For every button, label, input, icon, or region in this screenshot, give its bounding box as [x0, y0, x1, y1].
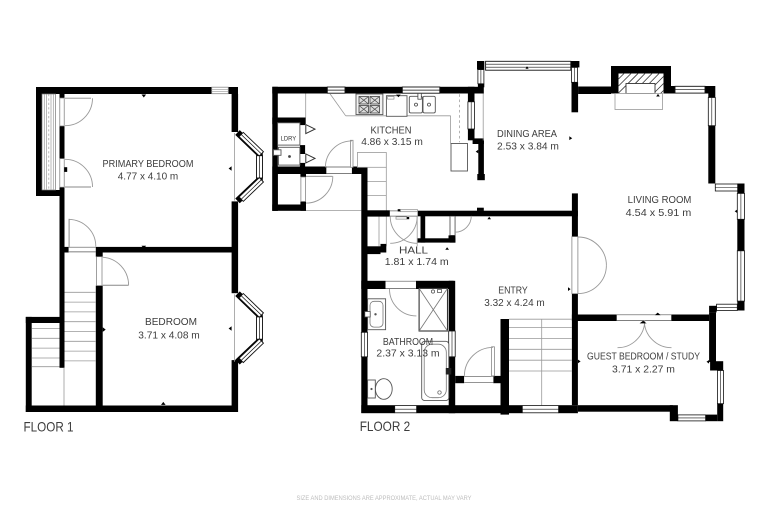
svg-text:4.86 x 3.15 m: 4.86 x 3.15 m — [361, 136, 423, 148]
svg-text:4.77 x 4.10 m: 4.77 x 4.10 m — [118, 170, 179, 182]
svg-text:PRIMARY BEDROOM: PRIMARY BEDROOM — [103, 158, 194, 170]
svg-text:FLOOR 1: FLOOR 1 — [24, 419, 74, 435]
svg-text:FLOOR 2: FLOOR 2 — [360, 418, 411, 434]
svg-text:2.37 x 3.13 m: 2.37 x 3.13 m — [376, 348, 439, 360]
svg-text:3.71 x 4.08 m: 3.71 x 4.08 m — [138, 329, 200, 341]
svg-text:BATHROOM: BATHROOM — [383, 336, 433, 348]
svg-text:1.81 x 1.74 m: 1.81 x 1.74 m — [385, 256, 449, 268]
svg-text:KITCHEN: KITCHEN — [371, 125, 412, 137]
svg-text:3.32 x 4.24 m: 3.32 x 4.24 m — [484, 297, 545, 309]
svg-text:4.54 x 5.91 m: 4.54 x 5.91 m — [626, 207, 692, 219]
svg-text:GUEST BEDROOM / STUDY: GUEST BEDROOM / STUDY — [587, 351, 700, 363]
svg-text:ENTRY: ENTRY — [498, 285, 528, 297]
svg-text:3.71 x 2.27 m: 3.71 x 2.27 m — [612, 363, 675, 375]
svg-text:LDRY: LDRY — [281, 137, 297, 143]
svg-text:DINING AREA: DINING AREA — [497, 128, 557, 140]
svg-text:BEDROOM: BEDROOM — [145, 316, 197, 328]
svg-text:SIZE AND DIMENSIONS ARE APPROX: SIZE AND DIMENSIONS ARE APPROXIMATE, ACT… — [297, 495, 473, 502]
svg-text:2.53 x 3.84 m: 2.53 x 3.84 m — [497, 141, 559, 153]
svg-text:HALL: HALL — [399, 244, 428, 256]
svg-text:LIVING ROOM: LIVING ROOM — [628, 194, 692, 206]
